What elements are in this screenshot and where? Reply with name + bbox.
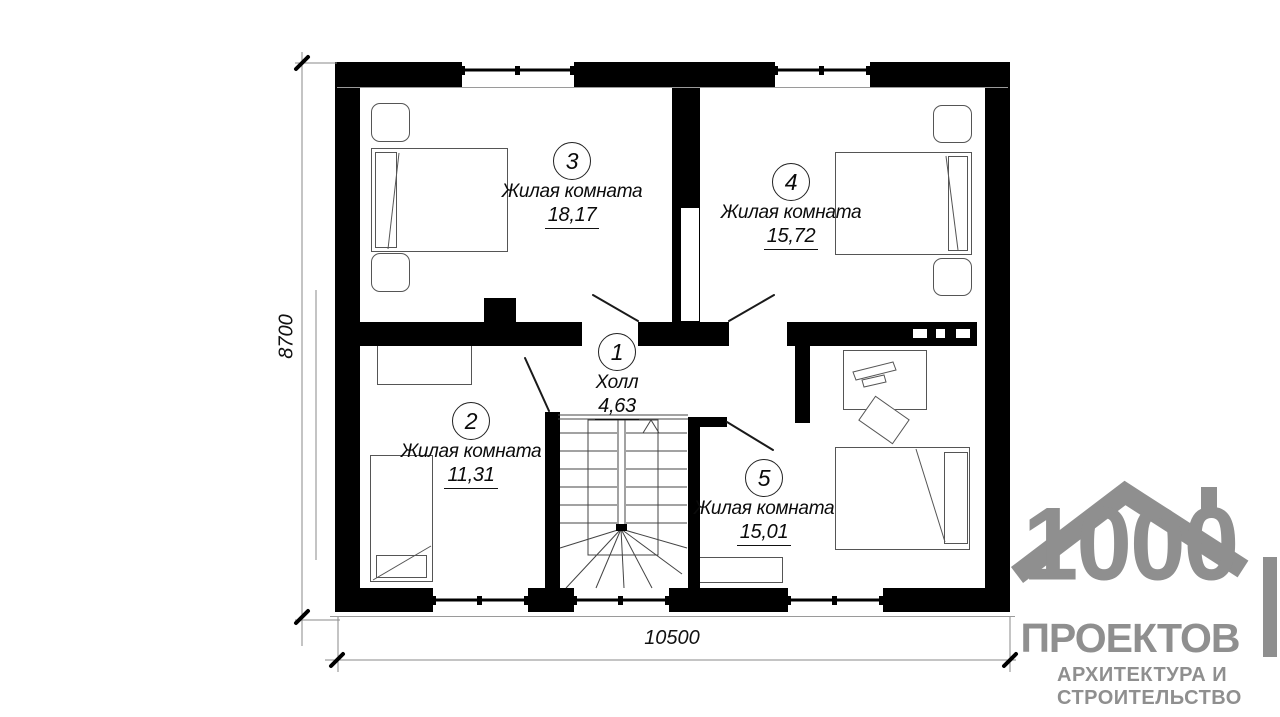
room-number: 3 bbox=[566, 148, 579, 175]
room-area: 18,17 bbox=[545, 204, 600, 229]
room-number: 1 bbox=[611, 339, 624, 366]
room-number-circle: 1 bbox=[598, 333, 636, 371]
logo-number: 1000 bbox=[1005, 491, 1255, 597]
room-number-circle: 4 bbox=[772, 163, 810, 201]
room-area: 15,72 bbox=[764, 225, 819, 250]
logo-subtitle-line1: АРХИТЕКТУРА И bbox=[1057, 664, 1227, 687]
room-name: Жилая комната bbox=[694, 498, 835, 520]
room-number-circle: 5 bbox=[745, 459, 783, 497]
dimension-bottom: 10500 bbox=[632, 627, 712, 650]
room-label-5: 5 Жилая комната 15,01 bbox=[654, 459, 874, 546]
room-area: 15,01 bbox=[737, 521, 792, 546]
room-number: 2 bbox=[465, 408, 478, 435]
stairs-direction-arrow bbox=[643, 420, 659, 433]
room-number-circle: 2 bbox=[452, 402, 490, 440]
logo-subtitle-line2: СТРОИТЕЛЬСТВО bbox=[1057, 687, 1242, 710]
logo: 1000 ПРОЕКТОВ АРХИТЕКТУРА И СТРОИТЕЛЬСТВ… bbox=[1005, 477, 1280, 717]
room-number: 5 bbox=[758, 465, 771, 492]
room-name: Жилая комната bbox=[721, 202, 862, 224]
logo-edge-bar bbox=[1263, 557, 1277, 657]
room-label-3: 3 Жилая комната 18,17 bbox=[462, 142, 682, 229]
dimension-left: 8700 bbox=[276, 297, 299, 377]
room-name: Жилая комната bbox=[401, 441, 542, 463]
room-number: 4 bbox=[785, 169, 798, 196]
room-area: 11,31 bbox=[444, 464, 497, 489]
room-name: Жилая комната bbox=[502, 181, 643, 203]
room-label-2: 2 Жилая комната 11,31 bbox=[361, 402, 581, 489]
floor-plan-canvas: 3 Жилая комната 18,17 4 Жилая комната 15… bbox=[0, 0, 1280, 717]
room-number-circle: 3 bbox=[553, 142, 591, 180]
logo-title: ПРОЕКТОВ bbox=[1005, 615, 1255, 662]
room-area: 4,63 bbox=[595, 395, 639, 420]
room-name: Холл bbox=[596, 372, 639, 394]
room-label-4: 4 Жилая комната 15,72 bbox=[681, 163, 901, 250]
